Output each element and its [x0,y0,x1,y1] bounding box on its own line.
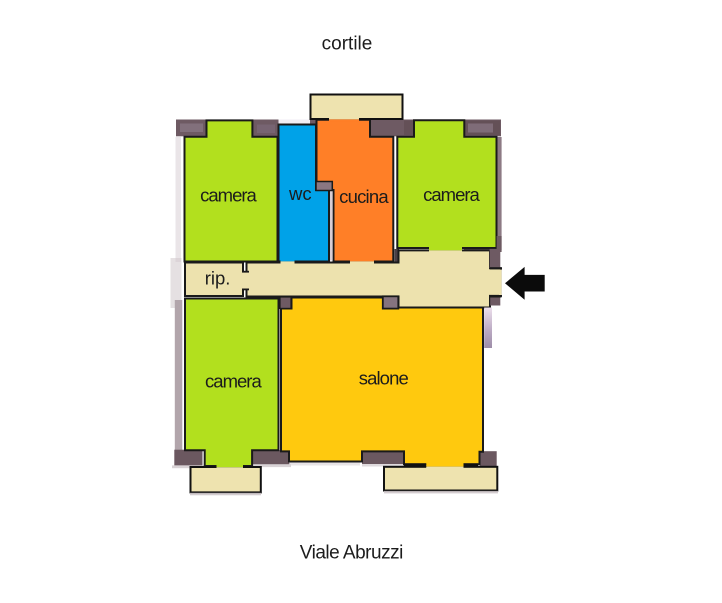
svg-text:rip.: rip. [205,267,231,288]
svg-text:camera: camera [423,184,480,205]
svg-text:cucina: cucina [339,186,389,207]
svg-text:camera: camera [205,371,262,392]
svg-text:wc: wc [288,183,312,204]
svg-text:Viale Abruzzi: Viale Abruzzi [300,543,403,564]
svg-text:cortile: cortile [322,34,373,55]
svg-text:camera: camera [200,184,257,205]
svg-text:salone: salone [359,368,409,389]
